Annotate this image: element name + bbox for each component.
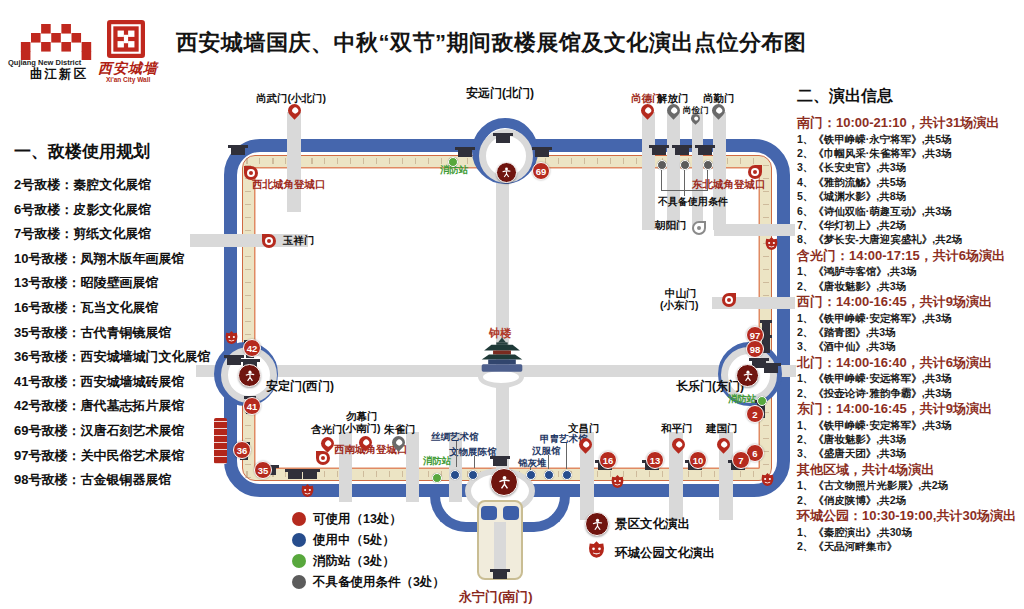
fire-station-dot [757, 396, 767, 406]
legend-dot-fire [292, 554, 306, 568]
section-header-north: 北门：14:00-16:40，共计6场演出 [797, 354, 1021, 372]
park-performance-mask-icon [610, 474, 625, 493]
legend-label-fire: 消防站（3处） [313, 553, 395, 570]
gate-label-chaoyang: 朝阳门 [655, 219, 687, 233]
right-panel-heading: 二、演出信息 [797, 86, 1021, 107]
red-banner [214, 418, 227, 464]
tower-item: 2号敌楼：秦腔文化展馆 [14, 173, 234, 198]
performance-icon-west [238, 364, 261, 387]
in-use-dot [544, 470, 554, 480]
park-performance-mask-icon [764, 236, 779, 255]
ne-entry-label: 东北城角登城口 [692, 178, 766, 192]
legend-dot-unusable [292, 575, 306, 589]
show-item: 1、《铁甲峥嵘·安定将军》,共3场 [797, 418, 1021, 432]
road [642, 112, 655, 230]
xian-wall-seal-icon [107, 20, 145, 58]
callout-line [548, 455, 549, 469]
badge-35: 35 [254, 461, 272, 479]
page-title: 西安城墙国庆、中秋“双节”期间敌楼展馆及文化演出点位分布图 [176, 28, 807, 58]
gate-label-north: 安远门(北门) [466, 85, 534, 102]
badge-13: 13 [646, 451, 664, 469]
section-header-east: 东门：14:00-16:45，共计9场演出 [797, 400, 1021, 418]
fire-station-dot [432, 473, 442, 483]
gate-tower-icon [493, 459, 507, 466]
gate-tower-icon [675, 148, 689, 155]
gate-label-zhongshan-2: (小东门) [660, 299, 699, 313]
fire-station-label-south: 消防站 [423, 455, 452, 468]
road [667, 112, 680, 230]
tower-item: 10号敌楼：凤翔木版年画展馆 [14, 247, 234, 272]
legend-label-usable: 可使用（13处） [313, 511, 402, 528]
section-header-other: 其他区域，共计4场演出 [797, 461, 1021, 479]
gate-tower-icon [227, 358, 241, 365]
show-item: 2、《踏青图》,共3场 [797, 325, 1021, 339]
fire-station-label-east: 消防站 [728, 393, 757, 406]
badge-36: 36 [233, 441, 251, 459]
wall-ticks-right [763, 160, 769, 478]
badge-69: 69 [532, 162, 550, 180]
show-item: 2、《巾帼风采·朱雀将军》,共3场 [797, 146, 1021, 160]
callout-line [566, 443, 567, 469]
tower-item: 13号敌楼：昭陵壁画展馆 [14, 271, 234, 296]
gate-tower-icon [764, 366, 778, 373]
show-item: 3、《盛唐天团》,共3场 [797, 446, 1021, 460]
gate-label-hanguang: 含光门 [311, 423, 343, 437]
show-item: 1、《鸿胪寺客馆》,共3场 [797, 264, 1021, 278]
legend-label-inuse: 使用中（5处） [313, 532, 395, 549]
section-header-hanguang: 含光门：14:00-17:15，共计6场演出 [797, 247, 1021, 265]
gate-label-south: 永宁门(南门) [459, 588, 533, 606]
road [287, 112, 301, 212]
unusable-dot [657, 160, 667, 170]
callout-line [684, 170, 685, 190]
legend-dot-usable [292, 512, 306, 526]
moat-arc-left [430, 490, 478, 532]
in-use-dot [450, 470, 460, 480]
gate-label-yuxiang: 玉祥门 [283, 234, 315, 248]
venue-label-hanfu: 汉服馆 [532, 445, 561, 458]
road [692, 112, 703, 230]
wall-ticks-left [245, 160, 251, 478]
in-use-dot [526, 470, 536, 480]
tower-item: 98号敌楼：古金银铜器展馆 [14, 468, 234, 493]
chaoyang-gate-icon [692, 221, 706, 235]
show-item: 3、《长安史官》,共3场 [797, 160, 1021, 174]
badge-7: 7 [732, 451, 750, 469]
sw-entry-icon [316, 451, 330, 465]
tower-item: 6号敌楼：皮影文化展馆 [14, 198, 234, 223]
park-performance-mask-icon [760, 472, 775, 491]
show-item: 2、《天品河畔集市》 [797, 539, 1021, 553]
yuxiang-gate-icon [262, 234, 276, 248]
callout-line [474, 456, 475, 468]
legend-label-scenic: 景区文化演出 [615, 516, 690, 533]
gate-tower-icon [231, 148, 245, 155]
park-performance-mask-icon [224, 330, 239, 349]
unusable-dot [680, 160, 690, 170]
section-header-south: 南门：10:00-21:10，共计31场演出 [797, 114, 1021, 132]
in-use-dot [468, 470, 478, 480]
nw-entry-icon [244, 166, 258, 180]
badge-41: 41 [243, 397, 261, 415]
tower-item: 16号敌楼：瓦当文化展馆 [14, 296, 234, 321]
badge-10: 10 [689, 451, 707, 469]
show-item: 8、《梦长安-大唐迎宾盛礼》,共2场 [797, 232, 1021, 246]
show-item: 2、《唐妆魅影》,共3场 [797, 432, 1021, 446]
left-panel-heading: 一、敌楼使用规划 [14, 140, 234, 163]
performance-icon-south [490, 468, 518, 496]
unusable-dot [703, 160, 713, 170]
gate-tower-icon [698, 148, 712, 155]
badge-42: 42 [243, 339, 261, 357]
callout-line [661, 170, 662, 190]
gate-tower-icon [493, 572, 507, 579]
road [714, 224, 795, 236]
moat-arc-right [522, 490, 570, 532]
tower-item: 42号敌楼：唐代墓志拓片展馆 [14, 394, 234, 419]
legend-scenic-performance-icon [585, 512, 609, 536]
show-item: 6、《诗仙双临·萌趣互动》,共3场 [797, 204, 1021, 218]
show-item: 1、《铁甲峥嵘·永宁将军》,共5场 [797, 132, 1021, 146]
tower-usage-panel: 一、敌楼使用规划 2号敌楼：秦腔文化展馆 6号敌楼：皮影文化展馆 7号敌楼：剪纸… [14, 140, 234, 493]
gate-label-west: 安定门(西门) [266, 378, 334, 395]
xian-wall-seal [107, 20, 145, 62]
fire-station-dot [448, 157, 458, 167]
south-barbican-wing [481, 506, 497, 520]
south-barbican-wing [503, 506, 519, 520]
tower-item: 35号敌楼：古代青铜镜展馆 [14, 321, 234, 346]
show-item: 3、《酒中仙》,共3场 [797, 339, 1021, 353]
nw-entry-label: 西北城角登城口 [252, 178, 326, 192]
tower-item: 97号敌楼：关中民俗艺术展馆 [14, 444, 234, 469]
gate-label-wumu-2: (小南门) [342, 422, 381, 436]
gate-tower-icon [535, 150, 549, 157]
road [713, 112, 726, 230]
performance-icon-east [736, 364, 759, 387]
show-item: 7、《华灯初上》,共2场 [797, 218, 1021, 232]
in-use-dot [562, 470, 572, 480]
legend-park-mask-icon [587, 540, 606, 563]
gate-tower-icon [458, 150, 472, 157]
gate-tower-icon [303, 472, 317, 479]
bell-tower-icon [476, 336, 528, 382]
show-item: 1、《铁甲峥嵘·安远将军》,共3场 [797, 371, 1021, 385]
gate-label-heping: 和平门 [661, 422, 693, 436]
zhongshan-gate-icon [722, 293, 736, 307]
show-item: 1、《秦腔演出》,共30场 [797, 525, 1021, 539]
gate-tower-icon [496, 136, 510, 143]
qujiang-logo-zh: 曲江新区 [30, 66, 88, 83]
show-item: 1、《铁甲峥嵘·安定将军》,共3场 [797, 311, 1021, 325]
legend-label-unusable: 不具备使用条件（3处） [313, 574, 445, 591]
ne-entry-icon [748, 165, 762, 179]
callout-line [456, 441, 457, 467]
badge-98: 98 [746, 340, 764, 358]
show-item: 2、《俏皮陕博》,共2场 [797, 493, 1021, 507]
show-item: 4、《雅韵流觞》,共5场 [797, 175, 1021, 189]
show-item: 5、《城渊水影》,共8场 [797, 189, 1021, 203]
performance-info-panel: 二、演出信息 南门：10:00-21:10，共计31场演出 1、《铁甲峥嵘·永宁… [797, 86, 1021, 553]
show-item: 2、《投壶论诗·雅韵争霸》,共3场 [797, 386, 1021, 400]
unusable-note-label: 不具备使用条件 [658, 195, 728, 209]
gate-tower-icon [652, 148, 666, 155]
venue-label-silk: 丝绸艺术馆 [431, 431, 479, 444]
gate-tower-icon [288, 472, 302, 479]
legend-dot-inuse [292, 533, 306, 547]
section-header-park: 环城公园：10:30-19:00,共计30场演出 [797, 507, 1021, 525]
badge-16: 16 [599, 451, 617, 469]
tower-item: 69号敌楼：汉唐石刻艺术展馆 [14, 419, 234, 444]
qujiang-logo-icon [18, 24, 98, 60]
xian-wall-logo-en: Xi'an City Wall [106, 76, 150, 83]
section-header-west: 西门：14:00-16:45，共计9场演出 [797, 293, 1021, 311]
legend-label-park: 环城公园文化演出 [615, 545, 715, 562]
show-item: 1、《古文物照片光影展》,共2场 [797, 478, 1021, 492]
badge-2: 2 [746, 405, 764, 423]
park-performance-mask-icon [300, 483, 315, 502]
show-item: 2、《唐妆魅影》,共3场 [797, 279, 1021, 293]
gate-label-jianguo: 建国门 [706, 422, 738, 436]
venue-label-jinhuidui: 锦灰堆 [518, 457, 547, 470]
performance-icon-north [496, 162, 517, 183]
